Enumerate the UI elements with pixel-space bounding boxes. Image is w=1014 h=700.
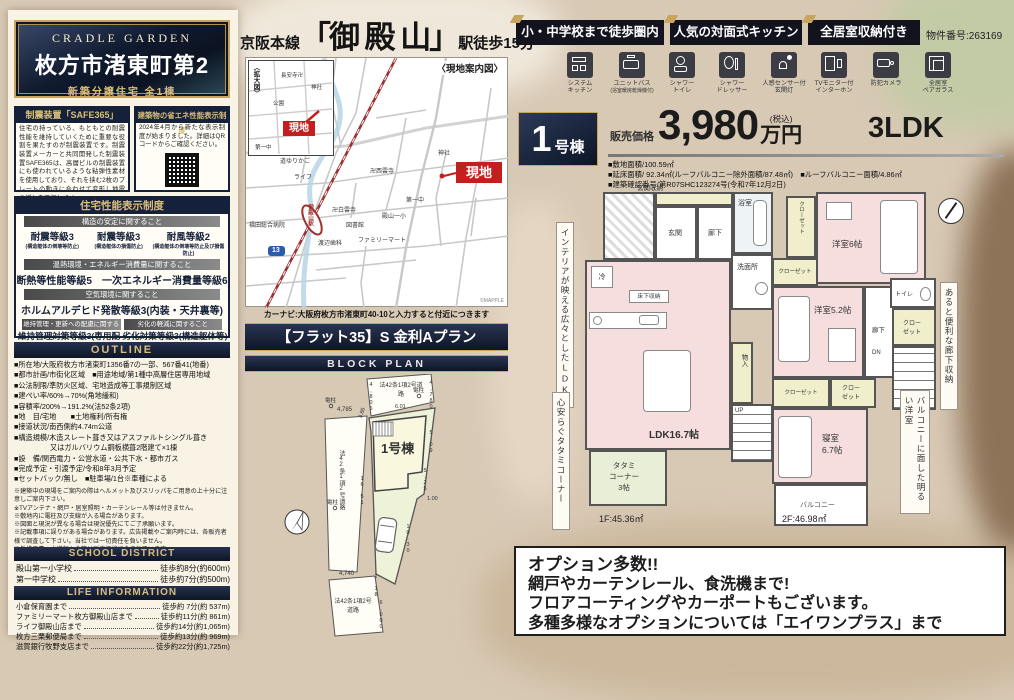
bed (778, 416, 812, 478)
road-label-left: 法42条1項2号道路 (337, 450, 346, 510)
feature-item-tv-intercom: TVモニター付インターホン (808, 52, 860, 95)
block-plan-header: BLOCK PLAN (245, 355, 508, 372)
life-place: ライフ御殿山店まで (16, 622, 82, 632)
grade-wind: 耐風等級2 (構造躯体の倒壊等防止及び損傷防止) (152, 229, 225, 257)
storage-1f: 物入 (731, 342, 753, 404)
pole-label: 電柱 (413, 386, 424, 394)
feature-label: 全居室 (929, 80, 948, 87)
page-title: 枚方市渚東町第2 (16, 48, 228, 80)
grade-name: 耐震等級3 (85, 229, 151, 243)
unit-bath-icon (619, 52, 645, 78)
feature-label: インターホン (815, 87, 852, 94)
compass-2f (938, 198, 964, 224)
perf-bar-air: 空気環境に関すること (24, 289, 220, 300)
school-row: 第一中学校徒歩約7分(約500m) (16, 574, 230, 585)
grade-formaldehyde: ホルムアルデヒド発散等級3(内装・天井裏等) (16, 302, 228, 317)
pair-glass-icon (925, 52, 951, 78)
grade-note: (構造躯体の倒壊等防止及び損傷防止) (152, 243, 225, 257)
performance-header: 住宅性能表示制度 (16, 198, 228, 214)
map-label: 図書館 (346, 220, 364, 229)
feature-label: 玄関灯 (775, 87, 794, 94)
map-caption: 〈現地案内図〉 (436, 61, 503, 75)
tv-intercom-icon (821, 52, 847, 78)
dim-label: 4,780 (428, 380, 434, 410)
options-box: オプション多数!! 網戸やカーテンレール、食洗機まで! フロアコーティングやカー… (514, 546, 1006, 636)
performance-box: 住宅性能表示制度 構造の安定に関すること 耐震等級3 (構造躯体の倒壊等防止) … (14, 196, 230, 338)
dim-label: 10.30 (405, 524, 411, 554)
site-marker-inset: 現地 (283, 121, 315, 136)
map-label: ライフ (294, 172, 312, 181)
school-name: 第一中学校 (16, 574, 56, 585)
outline-list: ■所在地/大阪府枚方市渚東町1356番7の一部、567番41(地番) ■都市計画… (14, 360, 232, 485)
inset-label: 長安寺卍 (281, 71, 303, 79)
dining-table (643, 350, 691, 412)
floor-plan-2f: クローゼット 洋室6帖 クローゼット 洋室5.2帖 廊下 トイレ クロー ゼット… (772, 192, 960, 510)
perf-bar-deterioration: 劣化の軽減に関すること (124, 319, 223, 330)
bathtub (753, 200, 767, 246)
inset-map: 〈拡大図〉 長安寺卍 神社 公園 第一中 現地 (248, 60, 334, 156)
room-label: 寝室 6.7帖 (822, 432, 842, 456)
perf-bar-row: 維持管理・更新への配慮に関すること 劣化の軽減に関すること (22, 319, 222, 330)
tatami-label: タタミ コーナー 3帖 (609, 460, 639, 493)
refrigerator: 冷 (591, 266, 613, 288)
grade-note: (構造躯体の倒壊等防止) (19, 243, 85, 250)
car-illustration (375, 517, 398, 553)
life-row: 枚方三栗郵便局まで徒歩約13分(約 969m) (16, 632, 230, 642)
carnavi-note: カーナビ:大阪府枚方市渚東町40-10と入力すると付近につきます (245, 309, 508, 320)
grade-note: (構造躯体の損傷防止) (85, 243, 151, 250)
feature-label: 人感センサー付 (762, 80, 805, 87)
ldk: 冷 床下収納 LDK16.7帖 (585, 260, 731, 450)
school-walk: 徒歩約7分(約500m) (160, 574, 230, 585)
outline-item: ■地 目/宅地 ■土地権利/所有権 (14, 412, 232, 422)
desk (828, 328, 856, 362)
dim-label: 16.51 (359, 476, 365, 506)
stairs-up: UP (731, 404, 773, 462)
route-number: 13 (272, 247, 280, 254)
toilet-bowl (920, 287, 931, 301)
inset-label: 公園 (273, 99, 284, 107)
area-1f: 1F:45.36㎡ (599, 512, 644, 525)
inset-label: 第一中 (255, 143, 272, 151)
room-label: 玄関 (668, 228, 682, 238)
feature-item-sensor-light: 人感センサー付玄関灯 (758, 52, 810, 95)
genkan-storage (655, 192, 733, 206)
life-row: 滋賀銀行牧野支店まで徒歩約22分(約1,725m) (16, 642, 230, 652)
annotation-tatami: 心安らぐタタミコーナー (552, 392, 570, 530)
security-camera-icon (873, 52, 899, 78)
annotation-ldk: インテリアが映える広々としたLDK (556, 222, 574, 408)
seismic-body: 住宅の持っている、もともとの耐震性能を維持していくために重要な役割を果たすのが制… (16, 123, 128, 205)
outline-note: ※建築中の現場をご案内の際はヘルメット及びスリッパをご用意の上十分に注意しご案内… (14, 488, 232, 505)
washroom: 洗面所 (731, 254, 773, 310)
room-label: クロー ゼット (903, 318, 921, 336)
school-name: 殿山第一小学校 (16, 563, 72, 574)
pole-label: 電柱 (327, 498, 338, 506)
bedroom-6: 洋室6帖 (816, 192, 926, 284)
feature-label: システム (568, 80, 593, 87)
room-label: 洋室5.2帖 (814, 304, 851, 316)
bedroom-52: 洋室5.2帖 (772, 286, 864, 378)
feature-label: 防犯カメラ (871, 80, 902, 87)
station-name: 「御 殿 山」 (300, 20, 458, 55)
life-row: ファミリーマート枚方御殿山店まで徒歩約11分(約 861m) (16, 612, 230, 622)
dim-label: 6.01 (395, 404, 406, 410)
map-label: 道ゆりかご (280, 156, 310, 165)
price-label: 販売価格 (610, 128, 654, 144)
site-dot (440, 174, 445, 179)
inset-caption: 〈拡大図〉 (250, 64, 260, 97)
stairs-down-label: DN (872, 350, 881, 356)
outline-item: ■建ぺい率/60%→70%(角地緩和) (14, 391, 232, 401)
page-subtitle: 新築分譲住宅 全1棟 (16, 83, 228, 98)
dim-label: 4,805 (368, 382, 374, 412)
room-label: 物入 (738, 354, 748, 367)
life-walk: 徒歩約 7分(約 537m) (162, 602, 230, 612)
outline-item: ■所在地/大阪府枚方市渚東町1356番7の一部、567番41(地番) (14, 360, 232, 370)
room-label: 浴室 (738, 198, 752, 208)
perf-bar-structure: 構造の安定に関すること (24, 216, 220, 227)
dim-label: 5.25 (422, 468, 428, 492)
price-underline (608, 154, 1004, 157)
map-label: 殿山一小 (382, 211, 406, 220)
outline-header: OUTLINE (14, 342, 230, 358)
energy-body: 2024年4月から新たな表示制度が始まりました。詳細はQRコードからご確認くださ… (136, 123, 228, 151)
title-plate: CRADLE GARDEN 枚方市渚東町第2 新築分譲住宅 全1棟 (14, 20, 230, 98)
brand-logo: CRADLE GARDEN (16, 31, 228, 46)
road-label-bottom: 法42条1項2号道路 (333, 596, 373, 614)
left-info-panel: CRADLE GARDEN 枚方市渚東町第2 新築分譲住宅 全1棟 制震装置「S… (8, 10, 238, 635)
closet-2f-left: クローゼット (772, 258, 818, 286)
feature-item-system-kitchen: システムキッチン (554, 52, 606, 95)
property-number: 物件番号:263169 (926, 27, 1002, 42)
room-label: 廊下 (872, 324, 885, 334)
genkan-storage-label: 玄関収納 (637, 182, 663, 192)
life-row: ライフ御殿山店まで徒歩約14分(約1,065m) (16, 622, 230, 632)
map-label: 神社 (438, 148, 450, 157)
school-walk: 徒歩約8分(約600m) (160, 563, 230, 574)
life-place: 枚方三栗郵便局まで (16, 632, 82, 642)
sensor-light-icon (771, 52, 797, 78)
block-plan: 1号棟 法42条1項2号道路 法42条1項2号道路 法42条1項2号道路 電柱 … (245, 374, 508, 638)
room-label: 洗面所 (737, 262, 758, 272)
room-label: バルコニー (800, 500, 835, 510)
map-label: ファミリーマート (358, 235, 406, 244)
feature-badge-kitchen: 人気の対面式キッチン (670, 20, 802, 45)
floor-storage-label: 床下収納 (637, 294, 660, 300)
master-bedroom: 寝室 6.7帖 (772, 408, 868, 484)
dim-label: 1.00 (427, 496, 438, 502)
grade-insulation: 断熱等性能等級5 一次エネルギー消費量等級6 (16, 272, 228, 287)
layout-type: 3LDK (868, 112, 944, 145)
price-number: 3,980 (658, 104, 758, 146)
feature-label: シャワー (720, 80, 745, 87)
outline-item: ■公法制限/準防火区域、宅地造成等工事規制区域 (14, 381, 232, 391)
life-walk: 徒歩約22分(約1,725m) (156, 642, 230, 652)
life-place: ファミリーマート枚方御殿山店まで (16, 612, 133, 622)
porch (603, 192, 655, 260)
closet-2f-mid: クロー ゼット (892, 308, 936, 346)
feature-item-pair-glass: 全居室ペアガラス (912, 52, 964, 95)
map-label: 卍白雲寺 (332, 205, 356, 214)
feature-label: キッチン (568, 87, 593, 94)
room-label: クローゼット (784, 390, 817, 396)
annotation-hall-storage: あると便利な廊下収納 (940, 282, 958, 410)
spec-lines: ■敷地面積/100.59㎡ ■延床面積/ 92.34㎡(ルーフバルコニー除外面積… (608, 160, 1008, 190)
feature-item-shower-dresser: シャワードレッサー (706, 52, 758, 95)
rail-line-name: 京阪本線 (240, 35, 300, 52)
outline-note: ※敷地内に電柱及び支線が入る場合があります。 (14, 513, 232, 521)
outline-item: ■完成予定・引渡予定/令和8年3月予定 (14, 464, 232, 474)
fridge-label: 冷 (599, 274, 606, 281)
outline-item: ■容積率/200%→191.2%(法52条2項) (14, 402, 232, 412)
life-place: 小倉保育園まで (16, 602, 67, 612)
feature-label: ドレッサー (717, 87, 748, 94)
hallway-1f: 廊下 (697, 206, 733, 260)
price-unit: 万円 (760, 125, 802, 146)
room-label: クローゼット (797, 201, 805, 234)
outline-note: ※TVアンテナ・網戸・居室照明・カーテンレール等は付きません。 (14, 505, 232, 513)
map-label: 福田総合病院 (249, 220, 285, 229)
floor-plan-1f: 玄関収納 玄関 廊下 浴室 洗面所 冷 床下収納 LDK16.7帖 物入 UP … (585, 192, 773, 510)
washer (755, 282, 768, 295)
compass-needle (945, 202, 958, 219)
grade-seismic-1: 耐震等級3 (構造躯体の倒壊等防止) (19, 229, 85, 257)
energy-label-box: 建築物の省エネ性能表示制度 2024年4月から新たな表示制度が始まりました。詳細… (134, 106, 230, 192)
room-label: トイレ (895, 289, 913, 298)
spec-line: ■敷地面積/100.59㎡ (608, 160, 1008, 170)
outline-item: 又はガルバリウム鋼板横葺2階建て×1棟 (14, 443, 232, 453)
feature-label: (浴室暖房乾燥機付) (610, 88, 653, 94)
unit-suffix: 号棟 (555, 136, 585, 157)
building-number: 1号棟 (381, 438, 414, 457)
inset-label: 神社 (311, 83, 322, 91)
feature-badge-storage: 全居室収納付き (808, 20, 920, 45)
annotation-balcony-room: バルコニーに面した明るい洋室 (900, 390, 930, 514)
perf-bar-maintenance: 維持管理・更新への配慮に関すること (22, 319, 121, 330)
seismic-header: 制震装置「SAFE365」 (16, 108, 128, 123)
closet-2f-bottom1: クローゼット (772, 378, 830, 408)
life-row: 小倉保育園まで徒歩約 7分(約 537m) (16, 602, 230, 612)
qr-code (165, 153, 199, 187)
dim-label: 2.18 (373, 574, 379, 598)
station-oval-label: 御殿山駅 (306, 204, 314, 226)
school-row: 殿山第一小学校徒歩約8分(約600m) (16, 563, 230, 574)
options-line: 網戸やカーテンレール、食洗機まで! (528, 575, 992, 595)
feature-item-shower-toilet: シャワートイレ (656, 52, 708, 95)
bed (778, 296, 810, 362)
floor-storage: 床下収納 (629, 290, 669, 303)
map-label: 卍西雲寺 (370, 166, 394, 175)
feature-item-unit-bath: ユニットバス(浴室暖房乾燥機付) (606, 52, 658, 96)
feature-item-security-camera: 防犯カメラ (860, 52, 912, 87)
flat35-banner: 【フラット35】S 金利Aプラン (245, 323, 508, 351)
dim-label: 5.09 (428, 430, 434, 454)
pole-label: 電柱 (325, 396, 336, 404)
life-walk: 徒歩約14分(約1,065m) (156, 622, 230, 632)
life-information-header: LIFE INFORMATION (14, 586, 230, 600)
life-walk: 徒歩約11分(約 861m) (161, 612, 230, 622)
grade-name: 耐震等級3 (19, 229, 85, 243)
outline-notes: ※建築中の現場をご案内の際はヘルメット及びスリッパをご用意の上十分に注意しご案内… (14, 488, 232, 554)
desk (826, 202, 852, 220)
room-label: 廊下 (708, 228, 722, 238)
feature-label: シャワー (670, 80, 695, 87)
life-place: 滋賀銀行牧野支店まで (16, 642, 89, 652)
options-line: オプション多数!! (528, 555, 992, 575)
spec-line: ■延床面積/ 92.34㎡(ルーフバルコニー除外面積/87.48㎡) ■ルーフバ… (608, 170, 1008, 180)
spec-line: ■建築確認番号/第R07SHC123274号(令和7年12月2日) (608, 180, 1008, 190)
options-line: フロアコーティングやカーポートもございます。 (528, 594, 992, 614)
area-map: 〈現地案内図〉 御殿山駅 13 渚西中 コーナン 道ゆりかご ライフ 卍西雲寺 … (245, 57, 508, 307)
room-label: クローゼット (778, 269, 811, 275)
shower-toilet-icon (669, 52, 695, 78)
shower-dresser-icon (719, 52, 745, 78)
closet-2f-top: クローゼット (786, 196, 816, 258)
price-amount: 3,980 (税込) 万円 (658, 104, 802, 146)
school-district-header: SCHOOL DISTRICT (14, 547, 230, 561)
outline-item: ■セットバック/無し ■駐車場/1台※車種による (14, 474, 232, 484)
stove (593, 316, 602, 325)
grade-row-1: 耐震等級3 (構造躯体の倒壊等防止) 耐震等級3 (構造躯体の損傷防止) 耐風等… (16, 229, 228, 257)
genkan: 玄関 (655, 206, 697, 260)
stairs-up-label: UP (735, 408, 743, 414)
closet-2f-bottom2: クロー ゼット (830, 378, 876, 408)
block-plan-drawing (245, 374, 508, 638)
unit-badge: 1 号棟 (518, 112, 598, 166)
sink (639, 315, 659, 325)
room-label: クロー ゼット (842, 383, 860, 401)
unit-number: 1 (531, 121, 551, 157)
dim-label: 4,740 (339, 571, 354, 577)
map-label: 第一中 (406, 195, 424, 204)
grade-seismic-2: 耐震等級3 (構造躯体の損傷防止) (85, 229, 151, 257)
grade-name: 耐風等級2 (152, 229, 225, 243)
map-credit: ©MAPPLE (480, 298, 504, 304)
feature-label: TVモニター付 (815, 80, 854, 87)
dim-label: 6,000 (378, 600, 384, 630)
outline-item: ■設 備/関西電力・公営水道・公共下水・都市ガス (14, 454, 232, 464)
perf-bar-energy: 温熱環境・エネルギー消費量に関すること (24, 259, 220, 270)
area-2f: 2F:46.98㎡ (782, 512, 827, 525)
bed (880, 200, 918, 274)
system-kitchen-icon (567, 52, 593, 78)
tatami-corner: タタミ コーナー 3帖 (589, 450, 667, 506)
site-marker-main: 現地 (456, 162, 502, 183)
seismic-device-box: 制震装置「SAFE365」 住宅の持っている、もともとの耐震性能を維持していくた… (14, 106, 130, 192)
outline-item: ■接道状況/南西側約4.74m公道 (14, 422, 232, 432)
bathroom: 浴室 (733, 192, 773, 254)
energy-header: 建築物の省エネ性能表示制度 (136, 108, 228, 123)
map-label: 渡辺歯科 (318, 238, 342, 247)
toilet-2f: トイレ (890, 278, 936, 308)
school-list: 殿山第一小学校徒歩約8分(約600m) 第一中学校徒歩約7分(約500m) (16, 563, 230, 585)
outline-item: ■都市計画/市街化区域 ■用途地域/第1種中高層住居専用地域 (14, 370, 232, 380)
feature-label: トイレ (673, 87, 692, 94)
ldk-label: LDK16.7帖 (649, 426, 699, 441)
dim-label: 4,785 (337, 407, 352, 413)
outline-item: ■構造規模/木造スレート葺き又はアスファルトシングル葺き (14, 433, 232, 443)
outline-note: ※記載事項に誤りがある場合があります。広告掲載やご案内時には、各販売者様で調査し… (14, 529, 232, 546)
room-label: 洋室6帖 (832, 238, 862, 250)
options-line: 多種多様なオプションについては「エイワンプラス」まで (528, 614, 992, 634)
station-headline: 京阪本線「御 殿 山」駅徒歩15分 (240, 12, 512, 57)
bg-wall-right (960, 150, 1014, 550)
life-list: 小倉保育園まで徒歩約 7分(約 537m) ファミリーマート枚方御殿山店まで徒歩… (16, 602, 230, 652)
feature-label: ペアガラス (923, 87, 954, 94)
feature-badge-schools: 小・中学校まで徒歩圏内 (516, 20, 664, 45)
life-walk: 徒歩約13分(約 969m) (160, 632, 230, 642)
feature-label: ユニットバス (613, 80, 650, 87)
